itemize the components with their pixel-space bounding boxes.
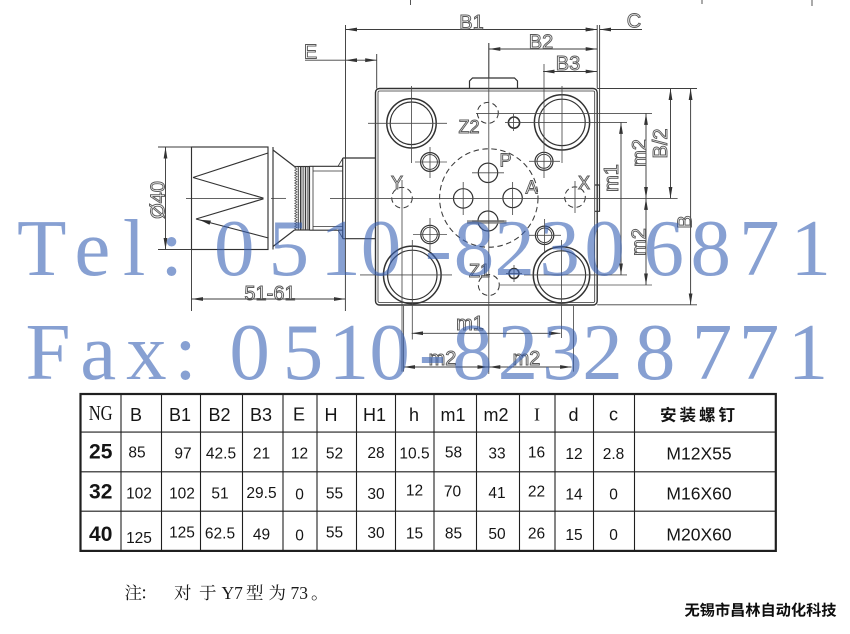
svg-text:55: 55 [326, 486, 343, 503]
svg-text:c: c [609, 404, 618, 424]
svg-text:B2: B2 [529, 32, 553, 54]
svg-text:58: 58 [445, 444, 462, 461]
svg-text:B1: B1 [459, 12, 483, 34]
svg-text:32: 32 [89, 481, 112, 504]
svg-text:51: 51 [211, 486, 228, 503]
svg-text:B: B [130, 405, 142, 425]
svg-text:M12X55: M12X55 [666, 443, 731, 463]
svg-text:P: P [500, 151, 512, 171]
svg-text:85: 85 [445, 526, 462, 543]
svg-text:41: 41 [488, 485, 505, 502]
svg-text:X: X [578, 173, 590, 193]
svg-text:E: E [304, 42, 317, 64]
svg-text:73: 73 [291, 583, 309, 603]
svg-text:0: 0 [609, 487, 618, 504]
svg-text:15: 15 [406, 526, 423, 543]
svg-text:m1: m1 [440, 405, 465, 425]
svg-text:Z2: Z2 [459, 117, 480, 137]
svg-text:B1: B1 [169, 405, 191, 425]
svg-text:15: 15 [565, 527, 582, 544]
svg-text:30: 30 [367, 525, 385, 542]
svg-text:m2: m2 [629, 139, 651, 167]
svg-text:M16X60: M16X60 [666, 484, 731, 504]
svg-text:55: 55 [326, 525, 343, 542]
svg-text:0: 0 [609, 527, 618, 544]
svg-text:12: 12 [565, 446, 582, 463]
svg-text:52: 52 [326, 445, 343, 462]
svg-text:29.5: 29.5 [246, 485, 276, 502]
svg-text:Tel: 0510-82306871: Tel: 0510-82306871 [17, 203, 831, 293]
svg-text:26: 26 [528, 526, 545, 543]
svg-text:102: 102 [169, 486, 195, 503]
svg-text:B/2: B/2 [650, 128, 672, 158]
svg-text:10.5: 10.5 [399, 445, 429, 462]
svg-text:49: 49 [253, 527, 270, 544]
svg-text:50: 50 [488, 526, 506, 543]
svg-text:102: 102 [126, 486, 152, 503]
svg-text:12: 12 [291, 445, 308, 462]
svg-text:Y7: Y7 [222, 583, 244, 603]
svg-text:70: 70 [444, 484, 462, 501]
svg-text:21: 21 [253, 445, 270, 462]
svg-text:25: 25 [89, 440, 113, 463]
svg-text:16: 16 [528, 444, 545, 461]
svg-text:14: 14 [565, 487, 583, 504]
svg-text:B2: B2 [208, 405, 230, 425]
svg-text:12: 12 [406, 483, 423, 500]
svg-text:Fax: 0510-82328771: Fax: 0510-82328771 [26, 307, 829, 397]
svg-text:125: 125 [126, 530, 152, 547]
svg-text:B3: B3 [250, 405, 272, 425]
svg-text:H: H [325, 405, 338, 425]
svg-text:62.5: 62.5 [205, 526, 235, 543]
svg-text:H1: H1 [363, 405, 386, 425]
svg-text:22: 22 [528, 484, 545, 501]
svg-text:125: 125 [169, 525, 195, 542]
svg-text:E: E [293, 404, 305, 424]
svg-text:97: 97 [174, 445, 191, 462]
svg-text:0: 0 [295, 528, 304, 545]
svg-text:0: 0 [295, 487, 304, 504]
svg-text:B3: B3 [556, 53, 580, 75]
svg-text:m1: m1 [601, 164, 623, 192]
svg-text:28: 28 [367, 445, 384, 462]
svg-text:30: 30 [367, 486, 385, 503]
svg-text:2.8: 2.8 [603, 446, 625, 463]
svg-text:h: h [409, 405, 419, 425]
svg-text:C: C [627, 11, 641, 33]
svg-text:d: d [568, 405, 578, 425]
svg-text:m2: m2 [483, 405, 508, 425]
svg-text:M20X60: M20X60 [666, 525, 731, 545]
svg-text:33: 33 [488, 445, 505, 462]
svg-text:40: 40 [89, 523, 112, 546]
svg-text:42.5: 42.5 [206, 445, 236, 462]
svg-text:Y: Y [391, 173, 403, 193]
svg-text:85: 85 [128, 444, 145, 461]
svg-text:NG: NG [89, 401, 113, 425]
svg-text:I: I [534, 404, 540, 424]
svg-text:A: A [526, 178, 538, 198]
